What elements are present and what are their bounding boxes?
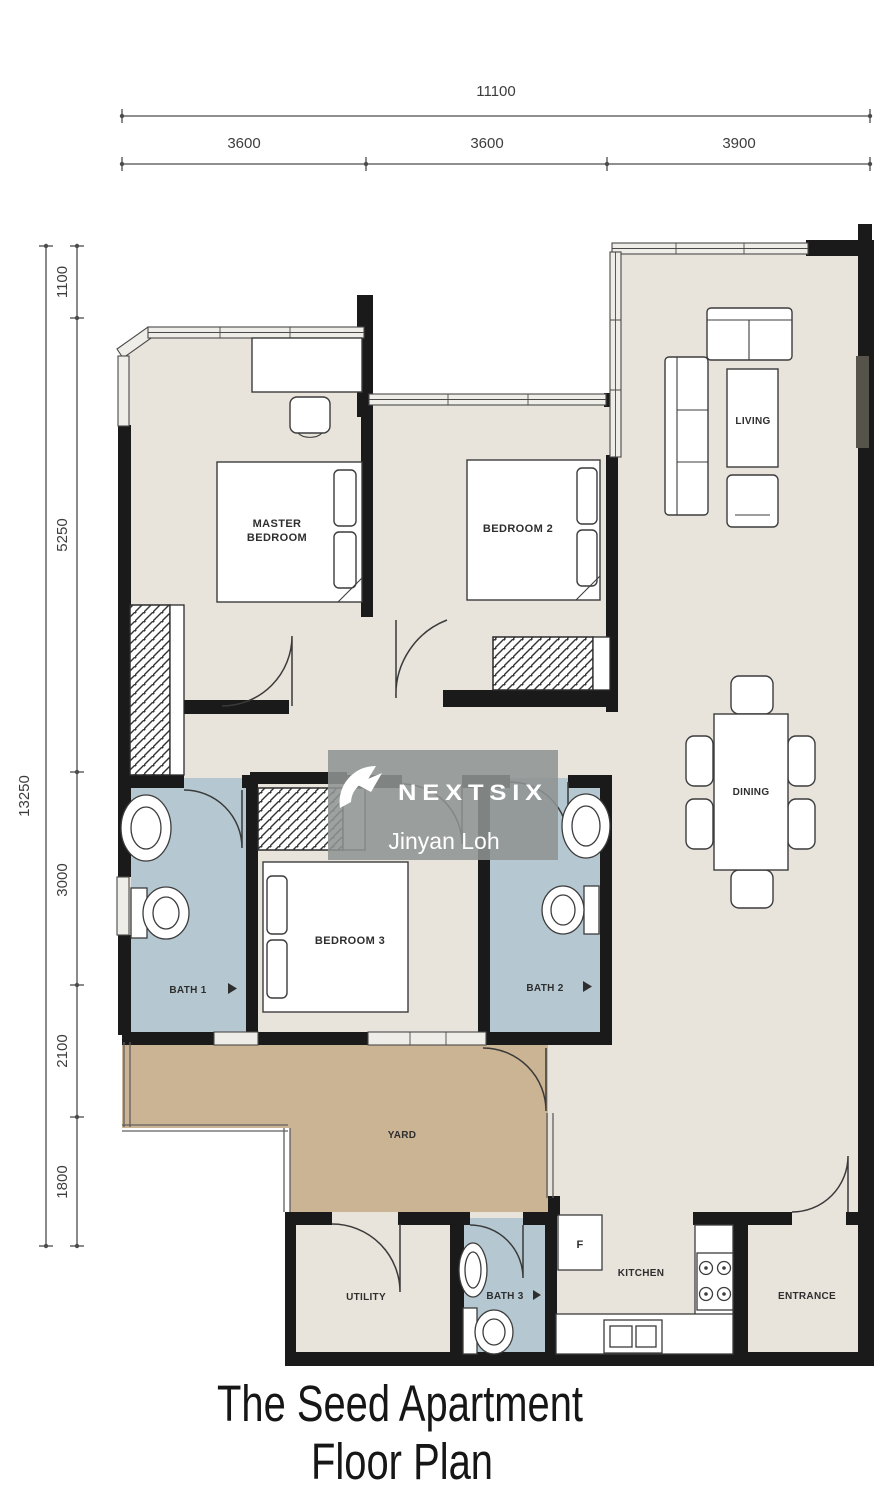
- entrance-label: ENTRANCE: [778, 1291, 836, 1302]
- dim-left-seg5: 1800: [54, 1165, 71, 1198]
- dresser: [252, 338, 362, 392]
- dim-top-seg1: 3600: [227, 135, 260, 152]
- pillow: [267, 876, 287, 934]
- yard-floor: [122, 1045, 548, 1212]
- window-band: [118, 356, 129, 426]
- pillow: [577, 530, 597, 586]
- dining-chair: [686, 799, 713, 849]
- floor-plan-title: The Seed Apartment Floor Plan: [217, 1375, 583, 1490]
- long-sofa: [665, 357, 708, 515]
- window-band: [117, 877, 129, 935]
- watermark: NEXTSIX Jinyan Loh: [328, 750, 558, 860]
- dim-left-seg1: 1100: [54, 266, 71, 298]
- master-bedroom-label: MASTER: [253, 518, 302, 530]
- master-bedroom-label: BEDROOM: [247, 532, 307, 544]
- pillow: [267, 940, 287, 998]
- dim-top-total: 11100: [476, 83, 516, 100]
- stove-icon: [697, 1253, 733, 1310]
- wardrobe: [493, 637, 610, 690]
- title-line-1: The Seed Apartment: [217, 1375, 583, 1432]
- dining-label: DINING: [733, 787, 770, 798]
- toilet-icon: [584, 886, 599, 934]
- dining-chair: [686, 736, 713, 786]
- dim-left-total: 13250: [16, 775, 33, 817]
- watermark-brand: NEXTSIX: [398, 780, 548, 805]
- window-band: [368, 1032, 486, 1045]
- title-line-2: Floor Plan: [311, 1433, 493, 1490]
- kitchen-label: KITCHEN: [618, 1268, 665, 1279]
- watermark-agent: Jinyan Loh: [388, 828, 499, 854]
- window-band: [214, 1032, 258, 1045]
- dining-chair: [731, 870, 773, 908]
- bedroom2-label: BEDROOM 2: [483, 523, 553, 535]
- chair: [290, 397, 330, 433]
- balcony-door-marker: [856, 356, 869, 448]
- floor-plan-drawing: MASTER BEDROOM BEDROOM 2 BEDROOM 3 LIVIN…: [0, 0, 887, 1500]
- living-label: LIVING: [735, 416, 770, 427]
- floor-plan-page: MASTER BEDROOM BEDROOM 2 BEDROOM 3 LIVIN…: [0, 0, 887, 1500]
- pillow: [334, 470, 356, 526]
- armchair: [727, 475, 778, 527]
- utility-label: UTILITY: [346, 1292, 386, 1303]
- wardrobe: [130, 605, 184, 775]
- bath1-label: BATH 1: [169, 985, 206, 996]
- pillow: [577, 468, 597, 524]
- dim-left-seg2: 5250: [54, 518, 71, 551]
- dining-chair: [731, 676, 773, 714]
- pillow: [334, 532, 356, 588]
- dim-top-seg3: 3900: [722, 135, 755, 152]
- dim-top-seg2: 3600: [470, 135, 503, 152]
- bath2-label: BATH 2: [526, 983, 563, 994]
- dim-left-seg3: 3000: [54, 863, 71, 896]
- dining-chair: [788, 799, 815, 849]
- dining-chair: [788, 736, 815, 786]
- dim-left-seg4: 2100: [54, 1034, 71, 1067]
- bath3-label: BATH 3: [486, 1291, 523, 1302]
- fridge-label: F: [576, 1239, 583, 1251]
- yard-label: YARD: [388, 1130, 417, 1141]
- bedroom3-label: BEDROOM 3: [315, 935, 385, 947]
